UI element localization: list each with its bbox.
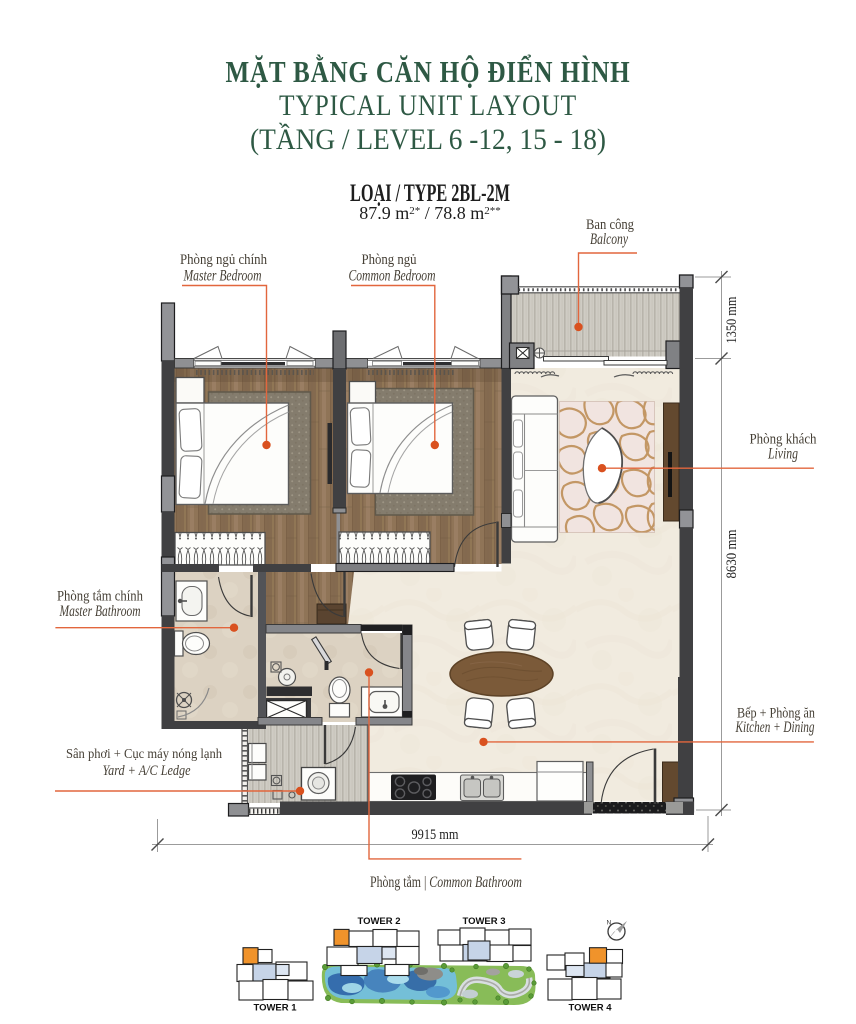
svg-text:Phòng ngủ: Phòng ngủ — [362, 252, 417, 268]
svg-text:(TẦNG / LEVEL 6 -12, 15 - 18): (TẦNG / LEVEL 6 -12, 15 - 18) — [250, 122, 606, 156]
svg-text:Kitchen + Dining: Kitchen + Dining — [735, 719, 815, 736]
svg-text:TOWER 2: TOWER 2 — [357, 916, 400, 927]
svg-text:Yard + A/C Ledge: Yard + A/C Ledge — [103, 763, 191, 779]
svg-text:MẶT BẰNG CĂN HỘ ĐIỂN HÌNH: MẶT BẰNG CĂN HỘ ĐIỂN HÌNH — [226, 53, 631, 89]
svg-text:1350 mm: 1350 mm — [724, 296, 740, 344]
svg-text:9915 mm: 9915 mm — [412, 827, 460, 843]
svg-text:Living: Living — [767, 446, 798, 463]
svg-text:TYPICAL UNIT LAYOUT: TYPICAL UNIT LAYOUT — [279, 89, 577, 122]
svg-text:Common Bedroom: Common Bedroom — [349, 268, 436, 285]
svg-text:Master Bathroom: Master Bathroom — [59, 603, 141, 620]
svg-text:8630 mm: 8630 mm — [724, 529, 740, 579]
svg-text:TOWER 3: TOWER 3 — [462, 916, 505, 927]
svg-text:Sân phơi + Cục máy nóng lạnh: Sân phơi + Cục máy nóng lạnh — [66, 747, 222, 762]
svg-text:N: N — [607, 920, 612, 927]
svg-text:Balcony: Balcony — [590, 231, 628, 248]
svg-text:Master Bedroom: Master Bedroom — [183, 268, 262, 285]
svg-text:Phòng tắm | Common Bathroom: Phòng tắm | Common Bathroom — [370, 874, 522, 891]
svg-text:TOWER 4: TOWER 4 — [568, 1003, 612, 1014]
svg-text:Phòng ngủ chính: Phòng ngủ chính — [180, 252, 267, 268]
svg-text:TOWER 1: TOWER 1 — [253, 1003, 297, 1014]
svg-text:87.9 m2* / 78.8 m2**: 87.9 m2* / 78.8 m2** — [359, 203, 501, 223]
